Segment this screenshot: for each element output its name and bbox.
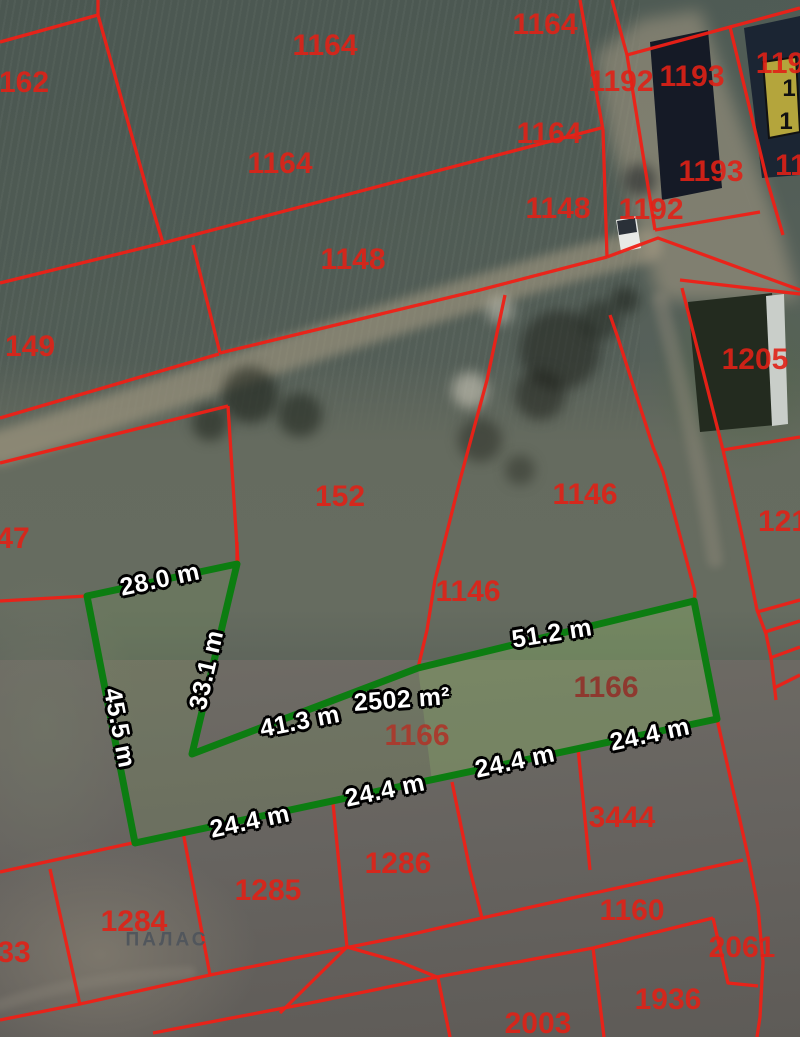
parcel-boundary-line [723, 450, 776, 700]
parcel-number-label: 1146 [435, 577, 500, 607]
parcel-number-label: 1285 [235, 876, 302, 906]
parcel-number-label: 1164 [516, 119, 581, 149]
parcel-boundary-line [593, 948, 604, 1037]
parcel-number-label: 47 [0, 524, 30, 554]
terrain-blob [624, 164, 656, 196]
area-measurement-label: 2502 m² [353, 684, 451, 716]
parcel-number-label: 1192 [618, 195, 683, 225]
parcel-number-label: 1205 [722, 345, 789, 375]
parcel-boundary-line [770, 647, 800, 658]
parcel-boundary-line [0, 842, 137, 872]
parcel-number-label: 1166 [573, 673, 638, 703]
building-number-label: 1 [779, 110, 792, 134]
parcel-boundary-line [347, 947, 437, 977]
parcel-boundary-line [0, 596, 87, 601]
parcel-boundary-line [98, 15, 163, 243]
parcel-number-label: 1286 [365, 849, 432, 879]
parcel-boundary-line [0, 15, 98, 42]
terrain-blob [611, 286, 639, 314]
parcel-boundary-line [723, 437, 800, 450]
parcel-number-label: 1164 [292, 31, 357, 61]
parcel-number-label: 1192 [588, 67, 653, 97]
parcel-number-label: 1193 [678, 157, 743, 187]
parcel-number-label: 1164 [512, 10, 577, 40]
terrain-blob [458, 418, 502, 462]
parcel-number-label: 3444 [589, 803, 656, 833]
parcel-boundary-line [717, 719, 748, 856]
building-number-label: 1 [782, 77, 795, 101]
parcel-boundary-line [418, 295, 505, 668]
parcel-number-label: 1193 [659, 62, 724, 92]
parcel-boundary-line [774, 675, 800, 688]
parcel-number-label: 121 [758, 507, 800, 537]
parcel-number-label: 11 [775, 151, 800, 181]
parcel-number-label: 1160 [599, 896, 664, 926]
parcel-number-label: 33 [0, 938, 31, 968]
parcel-number-label: 1148 [525, 194, 590, 224]
parcel-boundary-line [438, 978, 450, 1037]
terrain-blob [222, 367, 278, 423]
parcel-number-label: 1146 [552, 480, 617, 510]
place-name-label: ПАЛАС [126, 931, 209, 950]
terrain-blob [278, 393, 322, 437]
parcel-number-label: 149 [5, 332, 55, 362]
parcel-number-label: 1164 [247, 149, 312, 179]
cadastral-map-view[interactable]: 1164162116411921193119116411641148119211… [0, 0, 800, 1037]
parcel-boundary-line [757, 600, 800, 612]
parcel-number-label: 1166 [384, 721, 449, 751]
parcel-boundary-line [765, 621, 800, 632]
parcel-number-label: 152 [315, 482, 365, 512]
parcel-number-label: 1936 [635, 985, 702, 1015]
parcel-boundary-line [183, 832, 210, 975]
parcel-number-label: 2003 [505, 1009, 572, 1037]
parcel-boundary-line [333, 803, 347, 947]
terrain-blob [505, 455, 535, 485]
parcel-number-label: 162 [0, 68, 49, 98]
parcel-boundary-line [452, 782, 482, 918]
parcel-boundary-line [193, 245, 220, 353]
parcel-number-label: 1148 [320, 245, 385, 275]
parcel-number-label: 2061 [709, 933, 776, 963]
terrain-blob [515, 370, 565, 420]
parcel-boundary-line [228, 406, 238, 563]
